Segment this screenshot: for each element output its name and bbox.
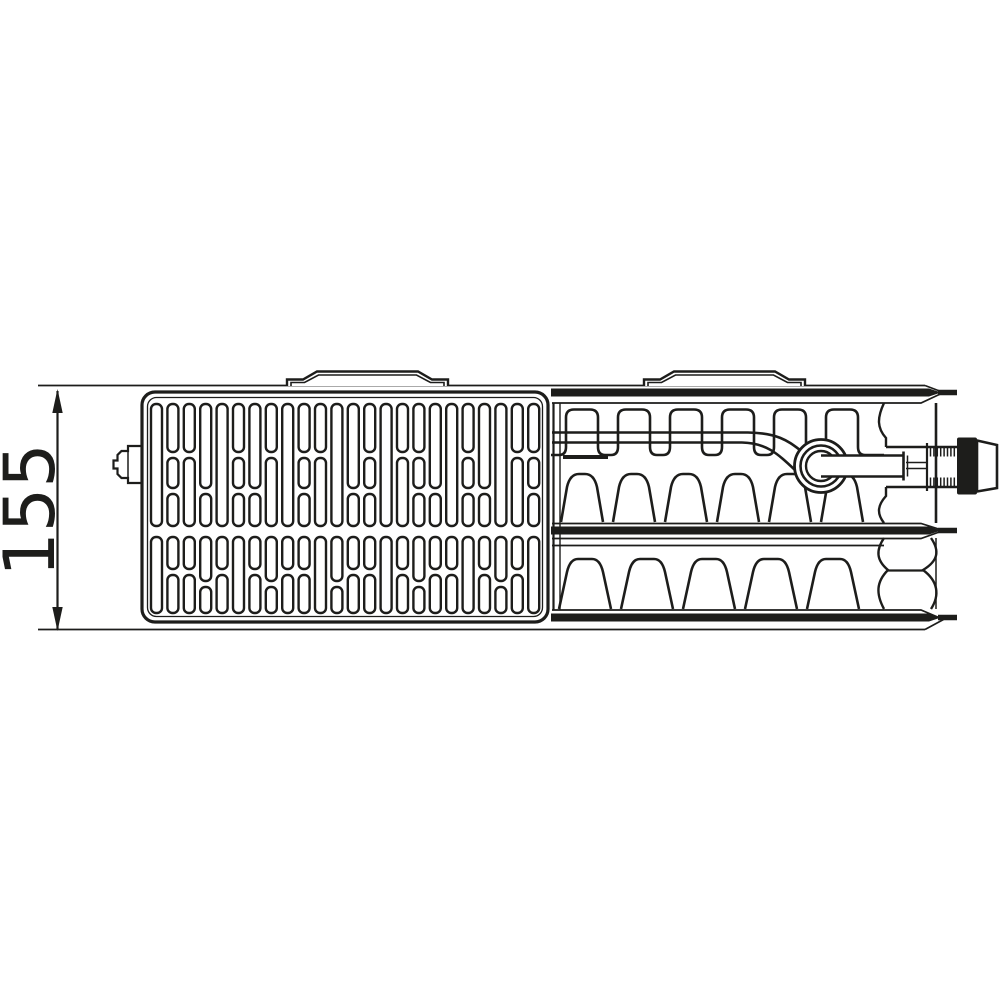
grille-slot [167,404,178,452]
grille-slot [495,404,506,526]
grille-slot [167,575,178,613]
grille-slot [315,537,326,613]
grille-slot [299,537,310,569]
grille-slot [446,537,457,569]
valve-collar [957,438,977,495]
valve-end-cap [977,441,997,492]
grille-slot [331,404,342,526]
grille-slot [446,404,457,526]
grille-slot [167,458,178,488]
grille-slot [348,494,359,526]
grille-slot [479,404,490,488]
grille-slot [528,537,539,613]
grille-slot [184,458,195,526]
grille-slot [413,494,424,526]
grille-slot [430,575,441,613]
grille-slot [430,537,441,569]
grille-slot [348,575,359,613]
grille-slot [463,494,474,526]
grille-slot [266,404,277,452]
grille-slot [413,587,424,613]
grille-slot [364,537,375,569]
grille-slot [299,404,310,452]
grille-slot [479,494,490,526]
grille-slot [463,537,474,613]
grille-slot [200,587,211,613]
grille-panel [142,392,548,622]
grille-slot [512,575,523,613]
grille-slot [266,458,277,526]
grille-slot [266,537,277,581]
grille-slot [364,575,375,613]
grille-slot [315,404,326,452]
grille-slot [413,458,424,488]
grille-slot [233,458,244,488]
grille-slot [397,458,408,526]
grille-slot [528,494,539,526]
grille-slot [299,458,310,488]
grille-slot [364,404,375,452]
grille-slot [446,575,457,613]
grille-slot [249,575,260,613]
grille-slot [184,537,195,569]
grille-slot [381,404,392,526]
grille-slot [512,404,523,452]
grille-slot [151,537,162,613]
grille-slot [282,575,293,613]
grille-slot [348,537,359,569]
grille-slot [299,494,310,526]
grille-slot [151,404,162,526]
grille-slot [364,494,375,526]
grille-slot [331,537,342,581]
grille-slot [528,404,539,452]
radiator-cross-section-drawing: 155 [0,0,1000,1000]
grille-slot [217,404,228,526]
grille-slot [266,587,277,613]
grille-slot [397,537,408,569]
grille-slot [331,587,342,613]
grille-slot [249,404,260,488]
grille-slot [282,404,293,526]
grille-slot [315,458,326,526]
grille-slot [233,537,244,613]
grille-slot [463,404,474,452]
grille-slot [249,537,260,569]
grille-slot [512,537,523,569]
grille-slot [184,404,195,452]
grille-slot [430,404,441,488]
grille-slot [479,575,490,613]
grille-slot [249,494,260,526]
top-rail-core [551,389,941,397]
grille-slot [528,458,539,488]
grille-slot [397,575,408,613]
grille-slot [167,537,178,569]
grille-slot [381,537,392,613]
grille-slot [184,575,195,613]
dimension-value: 155 [0,443,71,577]
grille-slot [282,537,293,569]
grille-slot [200,494,211,526]
stub-body [821,456,904,477]
grille-slot [413,537,424,581]
grille-slot [167,494,178,526]
grille-slot [430,494,441,526]
grille-slot [413,404,424,452]
grille-slot [200,404,211,488]
grille-slot [495,537,506,581]
grille-slot [299,575,310,613]
grille-slot [217,537,228,569]
middle-rail-core [551,527,941,535]
grille-slot [512,458,523,526]
grille-slot [217,575,228,613]
grille-slot [348,404,359,488]
grille-slot [200,537,211,581]
grille-slot [364,458,375,488]
bottom-rail-core [551,614,941,622]
grille-slot [233,494,244,526]
grille-slot [463,458,474,488]
grille-slot [479,537,490,569]
grille-slot [495,587,506,613]
radiator-technical-drawing-page: 155 [0,0,1000,1000]
grille-slot [233,404,244,452]
grille-slot [397,404,408,452]
